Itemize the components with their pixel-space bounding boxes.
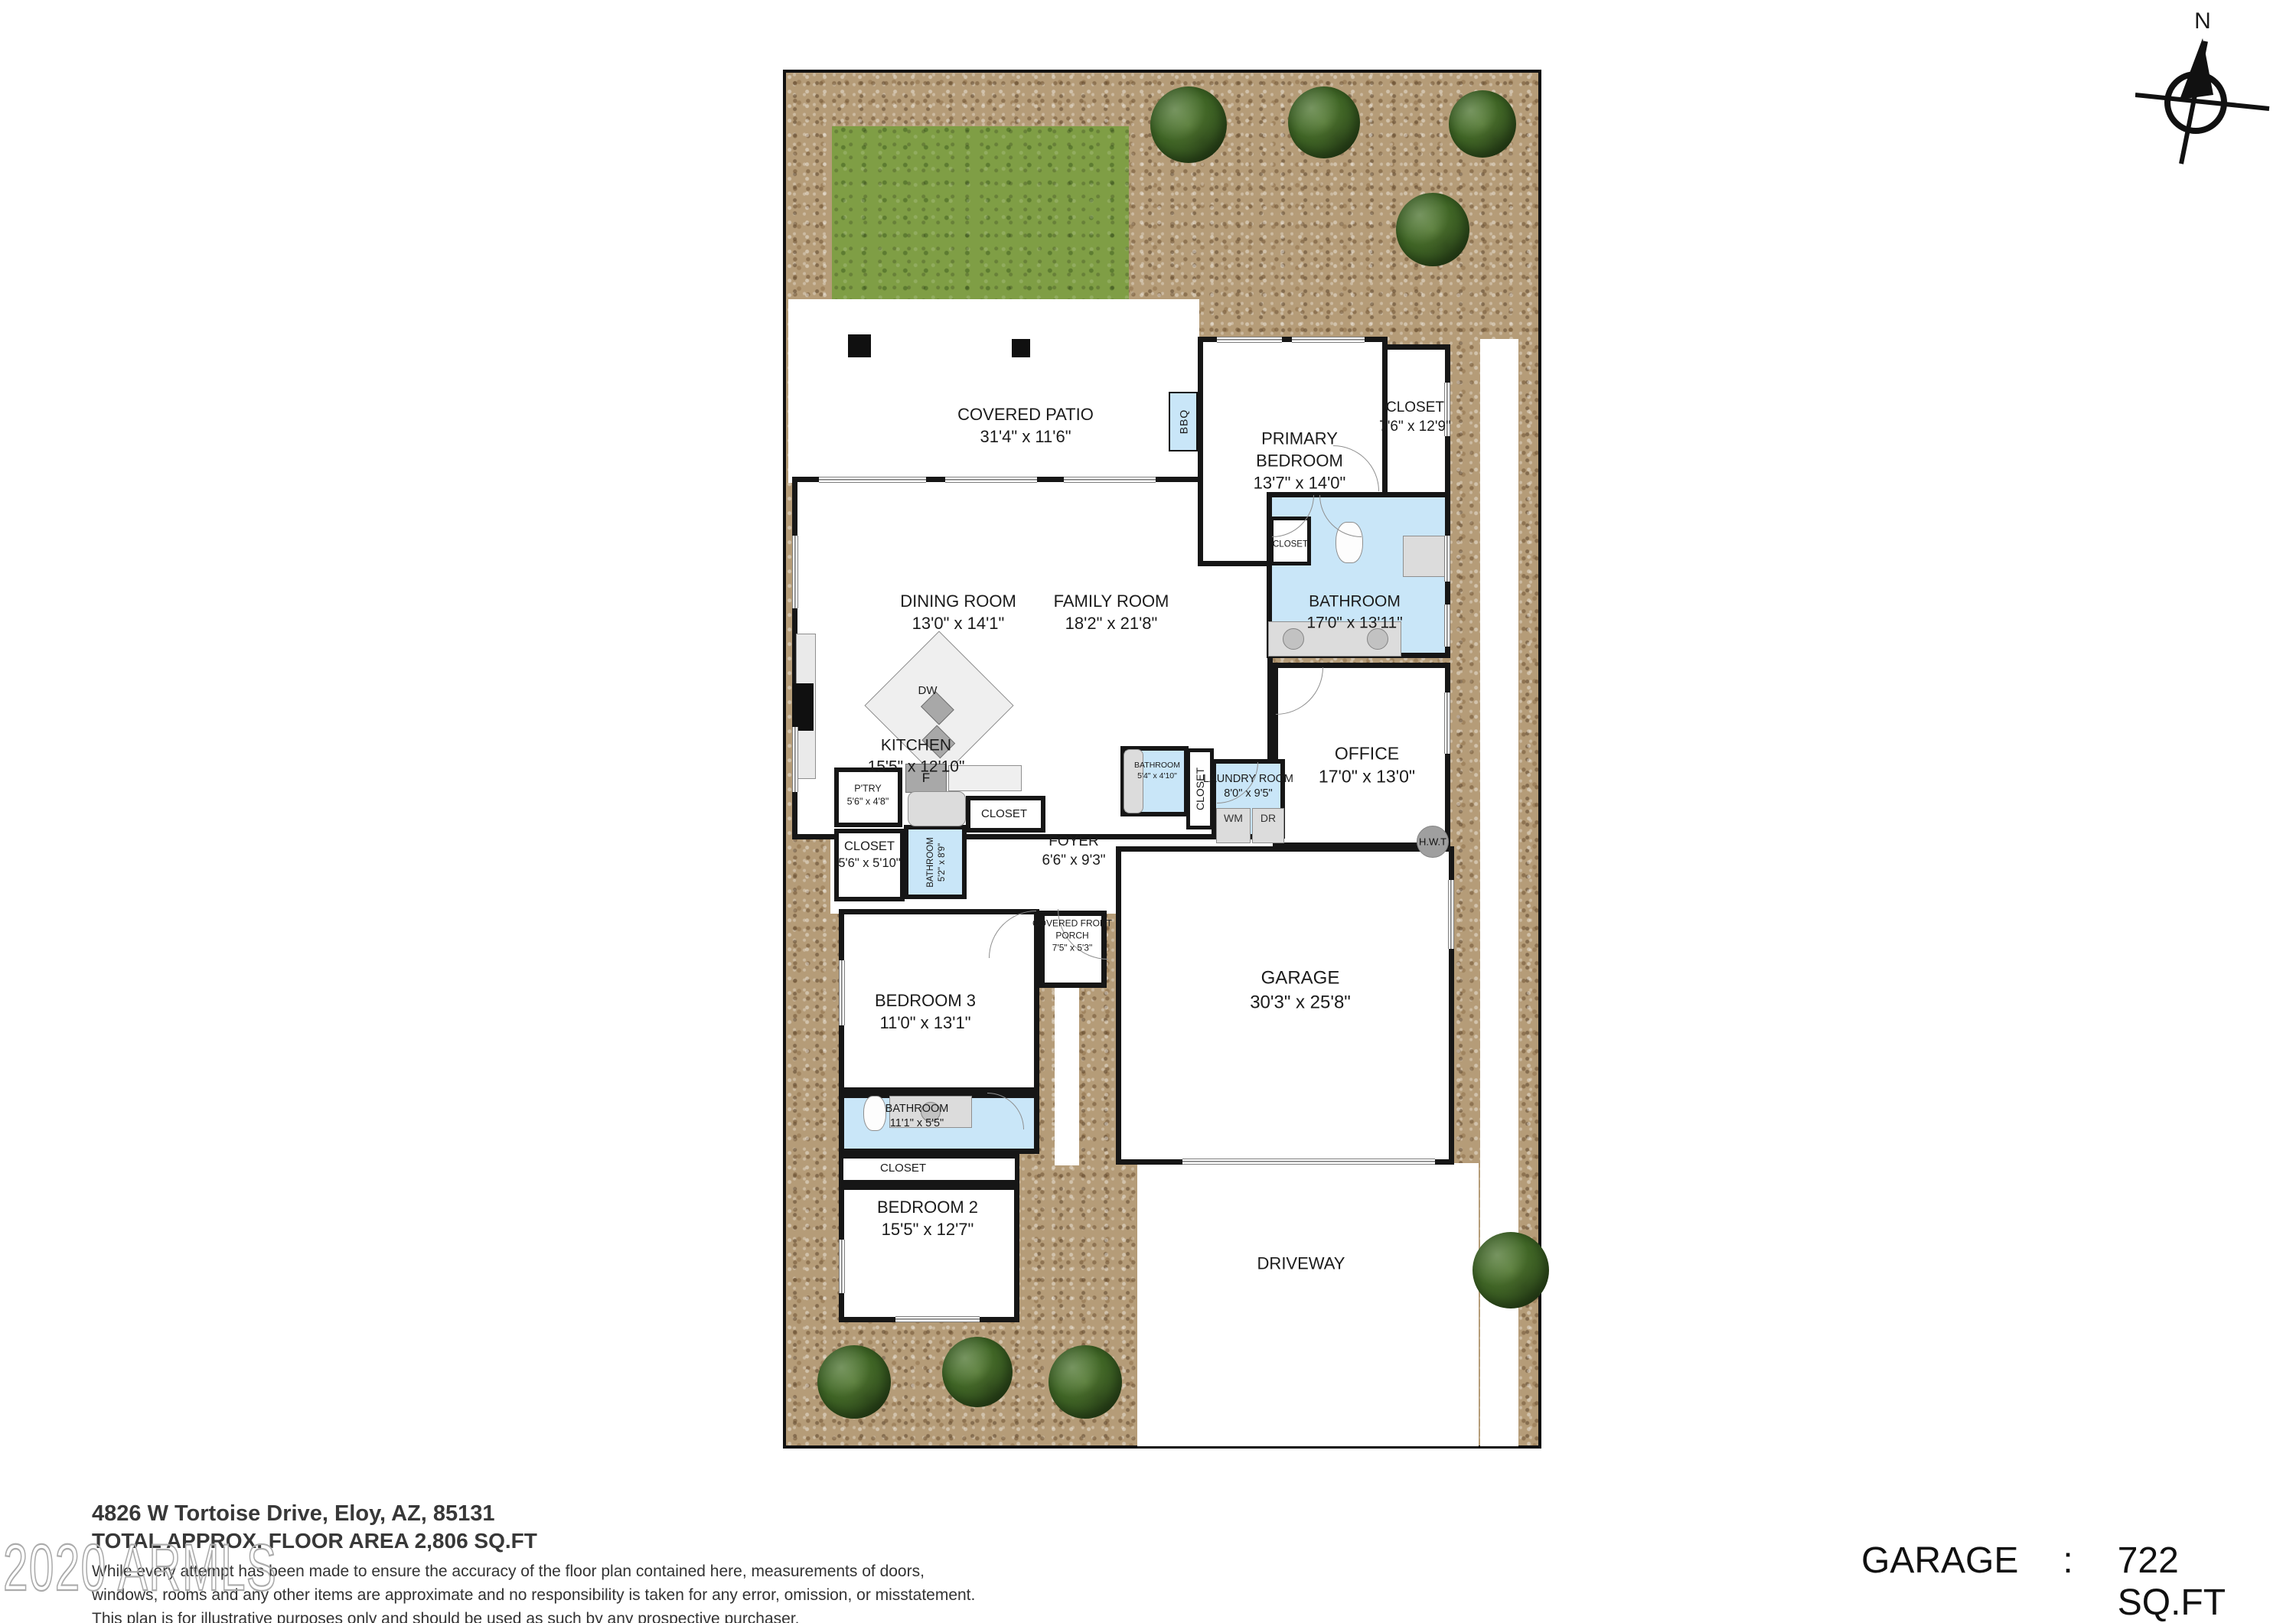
front-path — [1055, 988, 1079, 1165]
kitchen-label: KITCHEN 15'5" x 12'10" — [868, 735, 965, 777]
window — [792, 536, 798, 608]
dryer-icon: DR — [1252, 808, 1284, 843]
pantry-label: P'TRY 5'6" x 4'8" — [847, 783, 889, 808]
bbq-fixture: BBQ — [1169, 392, 1198, 451]
hwt-label: H.W.T — [1419, 835, 1446, 848]
covered-patio-label: COVERED PATIO 31'4" x 11'6" — [957, 403, 1094, 448]
stove-icon — [792, 683, 814, 731]
main-closet-label: CLOSET 5'6" x 5'10" — [838, 839, 900, 872]
footer-block: 4826 W Tortoise Drive, Eloy, AZ, 85131 T… — [92, 1501, 975, 1623]
tree — [1288, 86, 1360, 158]
dining-room-label: DINING ROOM 13'0" x 14'1" — [900, 590, 1016, 634]
dryer-label: DR — [1261, 812, 1276, 824]
sink-icon — [1283, 628, 1304, 650]
garage-callout-value: 722 SQ.FT — [2118, 1540, 2296, 1623]
address-line: 4826 W Tortoise Drive, Eloy, AZ, 85131 — [92, 1501, 975, 1527]
tree — [817, 1345, 891, 1419]
disclaimer: While every attempt has been made to ens… — [92, 1559, 975, 1623]
bathroom2-label: BATHROOM 11'1" x 5'5" — [885, 1102, 949, 1131]
small-bathroom-label: BATHROOM 5'4" x 4'10" — [1130, 761, 1185, 782]
patio-post — [848, 334, 871, 357]
closet2-label: CLOSET — [880, 1161, 926, 1176]
foyer-label: FOYER 6'6" x 9'3" — [1042, 832, 1105, 870]
garage-area-callout: GARAGE : 722 SQ.FT — [1861, 1540, 2296, 1623]
covered-patio-floor — [788, 299, 1199, 483]
window — [1444, 605, 1450, 647]
dw-label: DW — [918, 683, 938, 699]
window — [839, 1240, 845, 1293]
family-room-label: FAMILY ROOM 18'2" x 21'8" — [1054, 590, 1169, 634]
primary-bathroom-label: BATHROOM 17'0" x 13'11" — [1306, 591, 1402, 633]
window — [792, 727, 798, 792]
window — [1444, 693, 1450, 754]
shower-icon — [1403, 536, 1447, 577]
compass-n-label: N — [2194, 6, 2211, 37]
window — [819, 477, 926, 483]
front-porch-label: COVERED FRONT PORCH 7'5" x 5'3" — [1027, 917, 1117, 953]
washer-label: WM — [1224, 812, 1243, 824]
window — [1448, 880, 1454, 949]
window — [839, 960, 845, 1025]
bbq-label: BBQ — [1177, 409, 1189, 435]
toilet-icon — [863, 1096, 886, 1131]
garage-callout-label: GARAGE — [1861, 1540, 2018, 1582]
bedroom3-label: BEDROOM 3 11'0" x 13'1" — [875, 989, 976, 1034]
tree — [1150, 86, 1227, 163]
tub-icon — [908, 791, 966, 826]
tree — [1449, 90, 1516, 158]
garage-label: GARAGE 30'3" x 25'8" — [1250, 966, 1351, 1014]
hall-closet-label: CLOSET — [1193, 768, 1207, 810]
foyer-closet-label: CLOSET — [981, 807, 1027, 822]
window — [1064, 477, 1156, 483]
grass-patch — [832, 126, 1129, 305]
primary-bedroom-label: PRIMARY BEDROOM 13'7" x 14'0" — [1233, 427, 1367, 494]
garage-door — [1182, 1159, 1435, 1165]
tree — [1396, 193, 1469, 266]
tree — [1473, 1232, 1549, 1309]
garage-callout-colon: : — [2063, 1540, 2073, 1582]
total-area-line: TOTAL APPROX. FLOOR AREA 2,806 SQ.FT — [92, 1529, 975, 1553]
patio-post — [1012, 339, 1030, 357]
primary-closet-label: CLOSET 7'6" x 12'9" — [1379, 398, 1451, 436]
window — [1292, 337, 1365, 343]
sliding-door — [945, 477, 1037, 483]
primary-bath-closet-label: CLOSET — [1273, 539, 1308, 550]
office-label: OFFICE 17'0" x 13'0" — [1319, 742, 1415, 789]
bedroom2-label: BEDROOM 2 15'5" x 12'7" — [877, 1196, 978, 1240]
driveway-label: DRIVEWAY — [1257, 1252, 1345, 1274]
room-closet2 — [839, 1154, 1019, 1185]
hall-bathroom-label: BATHROOM 5'2" x 8'9" — [925, 837, 948, 888]
driveway-area — [1137, 1163, 1479, 1446]
washer-icon: WM — [1216, 808, 1251, 843]
floor-plan-page: BBQ F WM DR H.W.T — [0, 0, 2296, 1623]
laundry-label: LAUNDRY ROOM 8'0" x 9'5" — [1203, 772, 1293, 801]
window — [1217, 337, 1282, 343]
tree — [1049, 1345, 1122, 1419]
tree — [942, 1337, 1013, 1407]
window — [1444, 536, 1450, 582]
window — [895, 1316, 980, 1322]
